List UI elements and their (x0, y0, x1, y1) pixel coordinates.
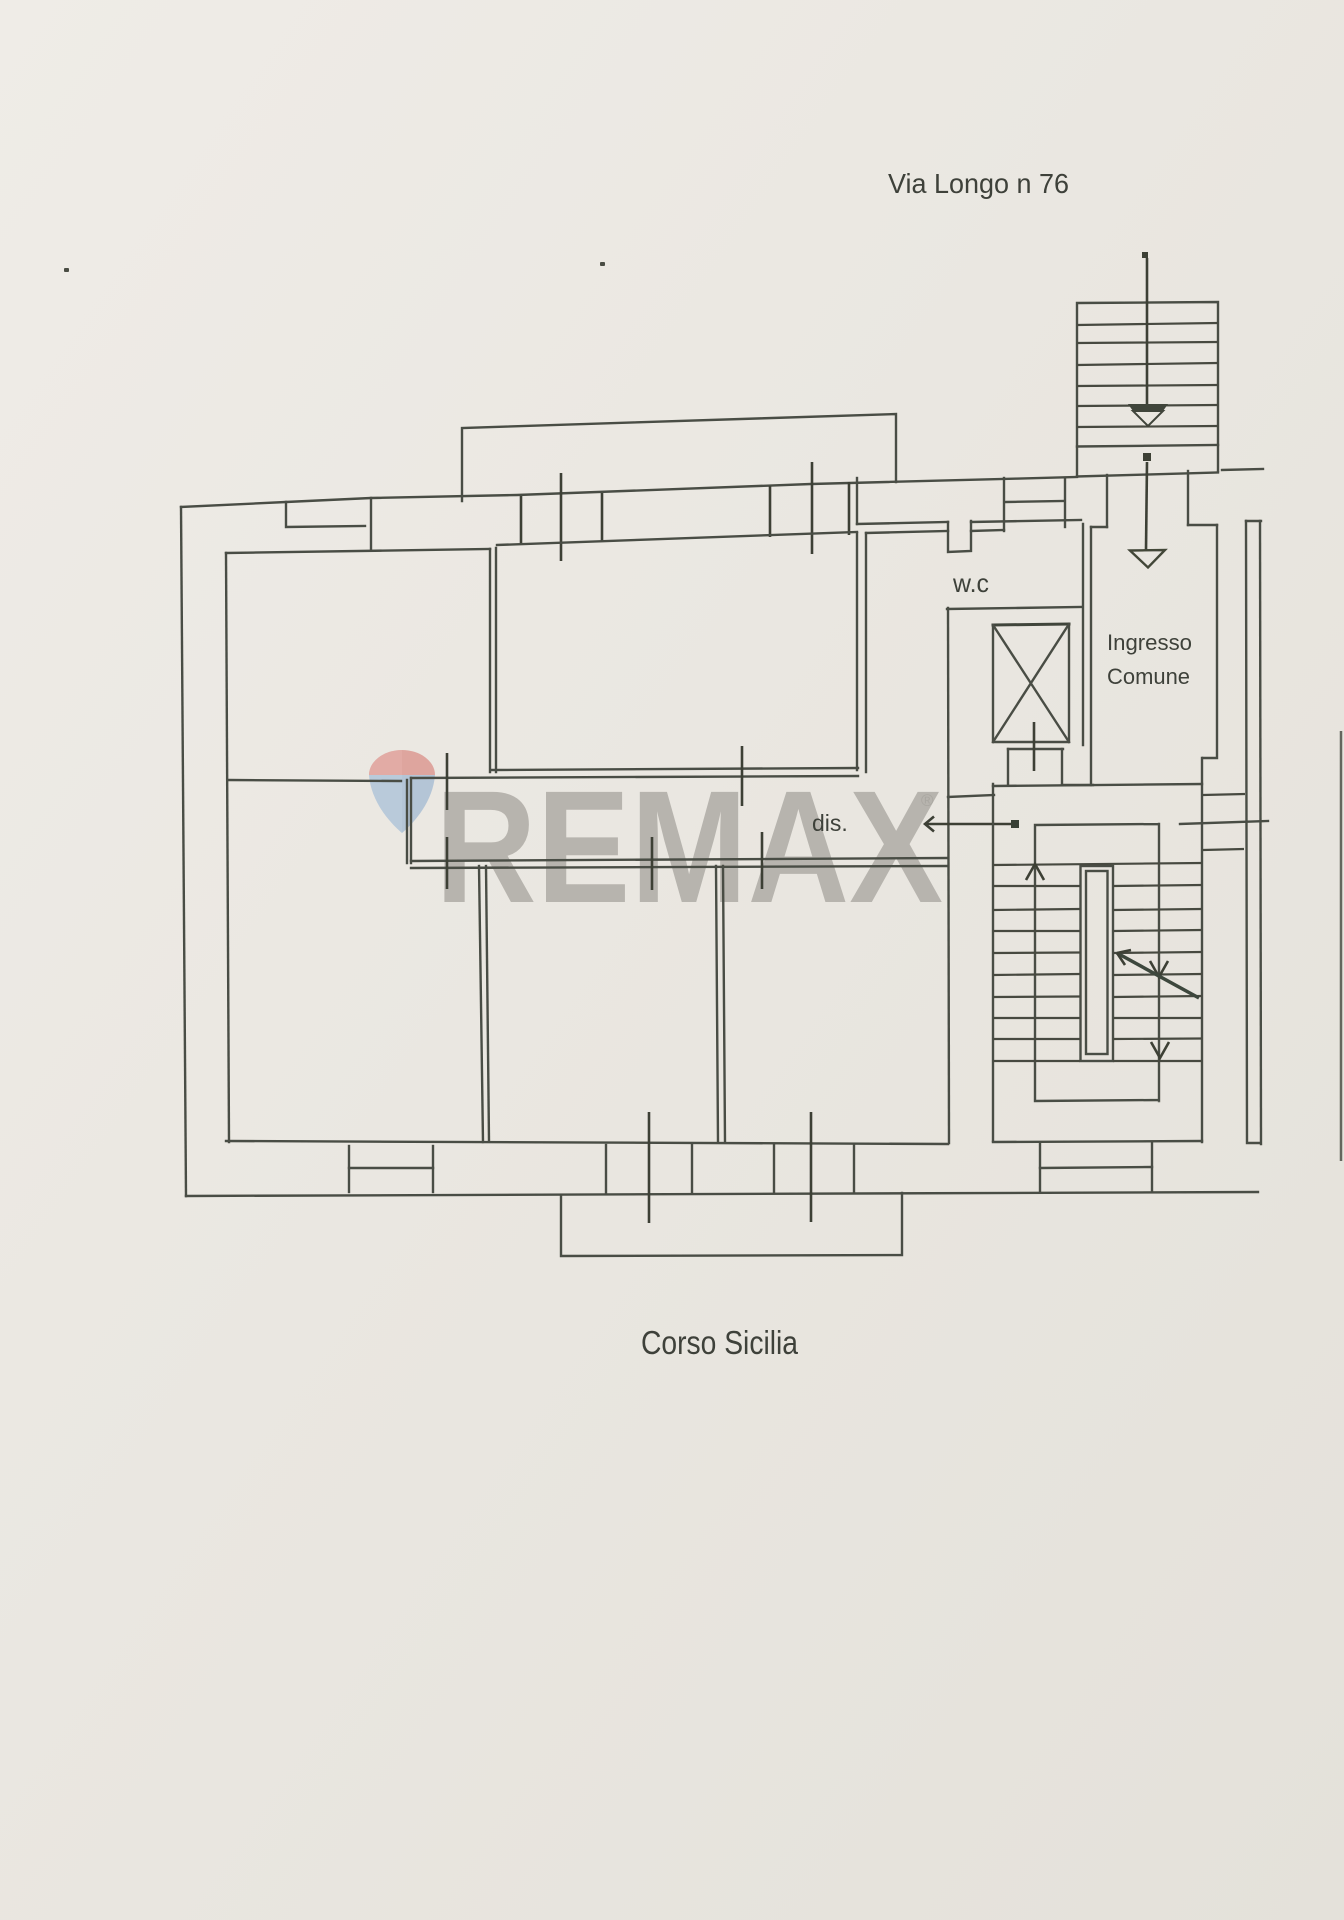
svg-text:w.c: w.c (952, 568, 989, 598)
svg-text:REMAX: REMAX (435, 757, 943, 936)
svg-text:Comune: Comune (1107, 664, 1190, 689)
svg-text:Corso Sicilia: Corso Sicilia (641, 1324, 799, 1361)
svg-text:Via Longo n 76: Via Longo n 76 (888, 168, 1069, 199)
svg-text:Ingresso: Ingresso (1107, 630, 1192, 655)
svg-text:®: ® (921, 791, 934, 810)
svg-text:dis.: dis. (812, 810, 848, 836)
